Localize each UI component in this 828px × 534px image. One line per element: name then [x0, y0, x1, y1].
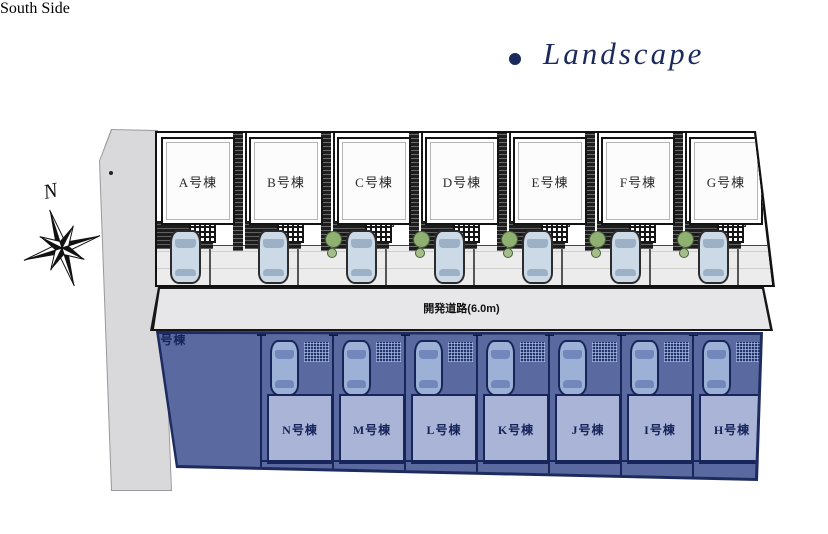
building-g-label: G号棟 — [707, 172, 745, 191]
lot-n: N号棟 — [260, 334, 334, 480]
car-icon — [414, 340, 443, 396]
tree-icon — [677, 231, 694, 248]
south-section-ground: O号棟 N号棟 M号棟 — [150, 331, 770, 482]
building-a: A号棟 — [161, 137, 235, 225]
lot-h: H号棟 — [692, 334, 766, 480]
north-section: A号棟 B号棟 C号棟 — [155, 131, 775, 287]
building-j-label: J号棟 — [571, 421, 604, 438]
garden-hatch — [404, 460, 480, 481]
garden-hatch — [260, 460, 336, 481]
entry-tiles — [664, 342, 689, 362]
building-m: M号棟 — [339, 394, 405, 464]
building-n: N号棟 — [267, 394, 333, 464]
building-d-label: D号棟 — [443, 172, 481, 191]
road-surface: 開発道路(6.0m) — [150, 287, 773, 331]
car-icon — [522, 230, 553, 284]
north-section-ground: A号棟 B号棟 C号棟 — [155, 131, 775, 287]
tree-icon — [325, 231, 342, 248]
building-a-label: A号棟 — [179, 172, 217, 191]
building-i-label: I号棟 — [644, 421, 676, 438]
garden-hatch — [476, 460, 552, 481]
building-k: K号棟 — [483, 394, 549, 464]
lot-k: K号棟 — [476, 334, 550, 480]
garden-hatch — [332, 460, 408, 481]
car-icon — [486, 340, 515, 396]
tree-icon — [589, 231, 606, 248]
entry-tiles — [592, 342, 617, 362]
building-b: B号棟 — [249, 137, 323, 225]
survey-point-icon — [109, 171, 113, 175]
building-l: L号棟 — [411, 394, 477, 464]
garden-hatch — [620, 460, 696, 481]
building-c: C号棟 — [337, 137, 411, 225]
lot-a: A号棟 — [157, 133, 247, 285]
lot-m: M号棟 — [332, 334, 406, 480]
lot-c: C号棟 — [333, 133, 423, 285]
building-e: E号棟 — [513, 137, 587, 225]
lot-j: J号棟 — [548, 334, 622, 480]
building-d: D号棟 — [425, 137, 499, 225]
car-icon — [270, 340, 299, 396]
car-icon — [702, 340, 731, 396]
lot-b: B号棟 — [245, 133, 335, 285]
south-side-overlay: South Side — [0, 0, 828, 18]
compass-north-label: N — [40, 180, 61, 204]
building-l-label: L号棟 — [426, 421, 461, 438]
tree-icon — [501, 231, 518, 248]
lot-l: L号棟 — [404, 334, 478, 480]
road: 開発道路(6.0m) — [150, 287, 773, 331]
car-icon — [258, 230, 289, 284]
building-f-label: F号棟 — [620, 172, 656, 191]
car-icon — [630, 340, 659, 396]
building-c-label: C号棟 — [355, 172, 393, 191]
bullet-icon — [509, 53, 521, 65]
building-n-label: N号棟 — [282, 421, 318, 438]
site-plan-canvas: Landscape N — [0, 0, 828, 534]
tree-icon — [413, 231, 430, 248]
entry-tiles — [304, 342, 329, 362]
building-m-label: M号棟 — [353, 421, 391, 438]
entry-tiles — [376, 342, 401, 362]
garden-hatch — [548, 460, 624, 481]
entry-tiles — [736, 342, 761, 362]
car-icon — [558, 340, 587, 396]
building-h-label: H号棟 — [714, 421, 750, 438]
lot-e: E号棟 — [509, 133, 599, 285]
lot-d: D号棟 — [421, 133, 511, 285]
lot-f: F号棟 — [597, 133, 687, 285]
page-title: Landscape — [543, 36, 704, 72]
car-icon — [698, 230, 729, 284]
building-g: G号棟 — [689, 137, 763, 225]
car-icon — [346, 230, 377, 284]
building-e-label: E号棟 — [532, 172, 569, 191]
south-section: O号棟 N号棟 M号棟 — [150, 331, 770, 482]
lot-g: G号棟 — [685, 133, 773, 285]
building-b-label: B号棟 — [267, 172, 305, 191]
car-icon — [170, 230, 201, 284]
car-icon — [342, 340, 371, 396]
entry-tiles — [520, 342, 545, 362]
entry-tiles — [448, 342, 473, 362]
building-i: I号棟 — [627, 394, 693, 464]
road-label: 開発道路(6.0m) — [150, 300, 773, 316]
building-j: J号棟 — [555, 394, 621, 464]
compass-rose-icon: N — [14, 180, 110, 298]
car-icon — [610, 230, 641, 284]
building-k-label: K号棟 — [498, 421, 534, 438]
building-f: F号棟 — [601, 137, 675, 225]
lot-i: I号棟 — [620, 334, 694, 480]
garden-hatch — [692, 460, 768, 481]
car-icon — [434, 230, 465, 284]
building-h: H号棟 — [699, 394, 765, 464]
